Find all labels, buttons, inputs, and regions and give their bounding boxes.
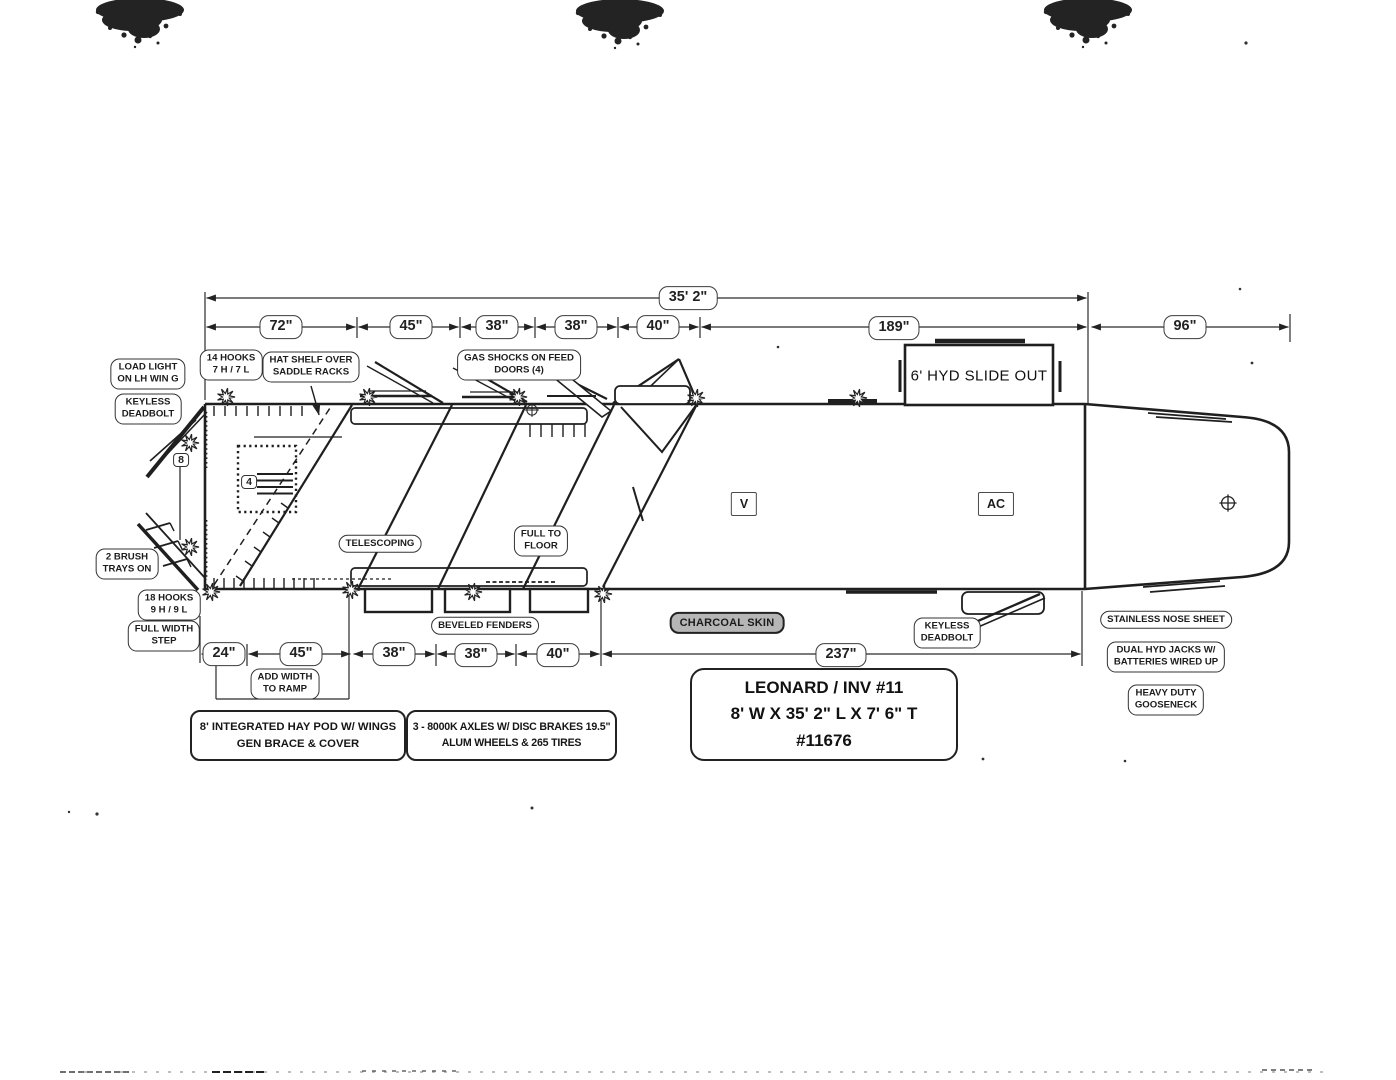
dim-chip-40-top: 40" (636, 315, 679, 339)
dim-chip-237: 237" (815, 643, 866, 667)
title-block-model: LEONARD / INV #11 (745, 675, 904, 701)
tag-8: 8 (173, 453, 189, 467)
dim-chip-72: 72" (259, 315, 302, 339)
note-load-light: LOAD LIGHT ON LH WIN G (110, 359, 185, 390)
note-gas-shocks: GAS SHOCKS ON FEED DOORS (4) (457, 350, 581, 381)
tag-vent-v: V (731, 492, 757, 516)
callout-axles-text: 3 - 8000K AXLES W/ DISC BRAKES 19.5" ALU… (413, 720, 611, 752)
note-full-width-step: FULL WIDTH STEP (128, 621, 200, 652)
dim-chip-24: 24" (202, 642, 245, 666)
note-charcoal-skin: CHARCOAL SKIN (670, 612, 785, 634)
tack-rails (292, 408, 587, 586)
note-heavy-duty-gooseneck: HEAVY DUTY GOOSENECK (1128, 685, 1204, 716)
note-dual-hyd-jacks: DUAL HYD JACKS W/ BATTERIES WIRED UP (1107, 642, 1225, 673)
note-beveled-fenders: BEVELED FENDERS (431, 617, 539, 635)
hat-shelf-leader-arrow (311, 386, 319, 415)
feed-doors (360, 359, 877, 452)
callout-axles: 3 - 8000K AXLES W/ DISC BRAKES 19.5" ALU… (406, 710, 617, 761)
dim-chip-38-top-1: 38" (475, 315, 518, 339)
clearance-light-icons (182, 388, 867, 603)
title-block-serial: #11676 (796, 728, 852, 754)
note-full-to-floor: FULL TO FLOOR (514, 526, 568, 557)
note-14-hooks: 14 HOOKS 7 H / 7 L (200, 350, 263, 381)
dim-chip-189: 189" (868, 316, 919, 340)
dim-chip-overall-length: 35' 2" (659, 286, 718, 310)
diagram-linework (0, 0, 1396, 1080)
trailer-spec-drawing: 35' 2" 72" 45" 38" 38" 40" 189" 96" 24" … (0, 0, 1396, 1080)
stall-dividers (236, 404, 697, 589)
dim-chip-40-bottom: 40" (536, 643, 579, 667)
rear-stall-interior (206, 405, 342, 588)
ink-blobs (96, 0, 1132, 49)
dim-chip-45-top: 45" (389, 315, 432, 339)
page-bottom-scan-line (60, 1070, 1330, 1072)
note-add-width-to-ramp: ADD WIDTH TO RAMP (251, 669, 320, 700)
note-brush-trays: 2 BRUSH TRAYS ON (96, 549, 159, 580)
title-block: LEONARD / INV #11 8' W X 35' 2" L X 7' 6… (690, 668, 958, 761)
note-18-hooks: 18 HOOKS 9 H / 9 L (138, 590, 201, 621)
note-telescoping: TELESCOPING (339, 535, 422, 553)
note-keyless-deadbolt-front: KEYLESS DEADBOLT (914, 618, 981, 649)
dim-chip-38-bottom-1: 38" (372, 642, 415, 666)
callout-hay-pod-text: 8' INTEGRATED HAY POD W/ WINGS GEN BRACE… (200, 719, 396, 753)
note-hat-shelf: HAT SHELF OVER SADDLE RACKS (263, 352, 360, 383)
tag-ac-unit: AC (978, 492, 1014, 516)
note-keyless-deadbolt-rear: KEYLESS DEADBOLT (115, 394, 182, 425)
callout-hay-pod: 8' INTEGRATED HAY POD W/ WINGS GEN BRACE… (190, 710, 406, 761)
gooseneck-nose (1085, 404, 1289, 589)
tag-4: 4 (241, 475, 257, 489)
note-stainless-nose-sheet: STAINLESS NOSE SHEET (1100, 611, 1232, 629)
title-block-dimensions: 8' W X 35' 2" L X 7' 6" T (731, 701, 918, 727)
dim-chip-45-bottom: 45" (279, 642, 322, 666)
dim-chip-38-top-2: 38" (554, 315, 597, 339)
dim-chip-96: 96" (1163, 315, 1206, 339)
dim-chip-38-bottom-2: 38" (454, 643, 497, 667)
label-hyd-slide-out: 6' HYD SLIDE OUT (911, 368, 1048, 385)
